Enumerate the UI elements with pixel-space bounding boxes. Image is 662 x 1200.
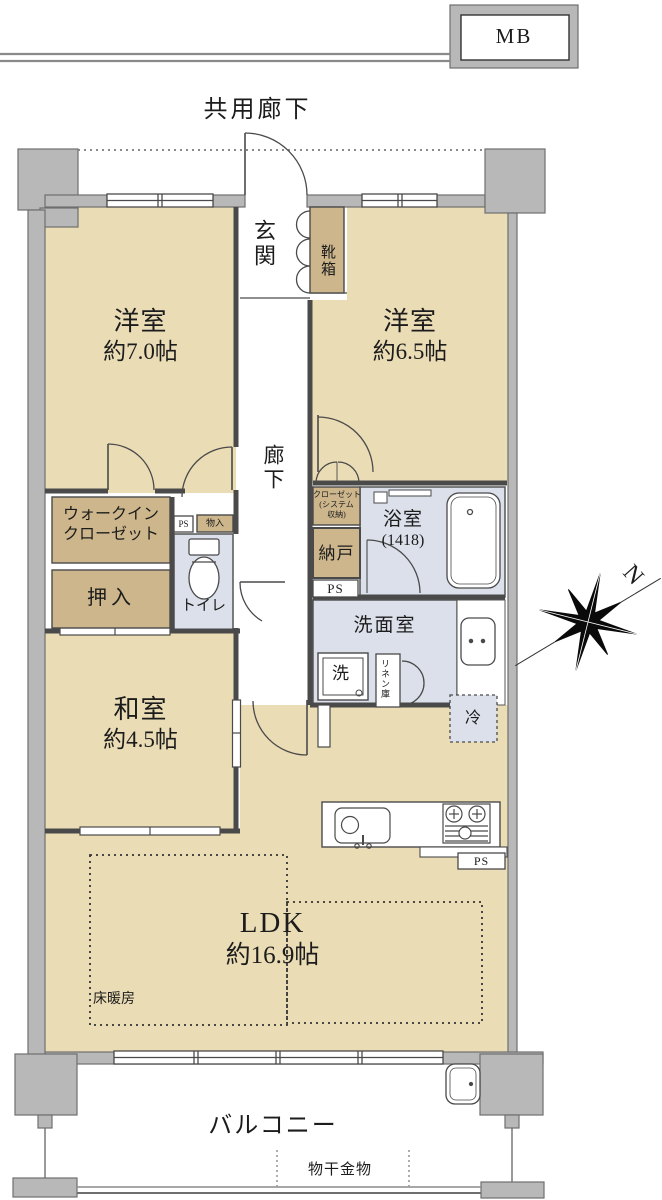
closet-line1: クローゼット bbox=[313, 490, 360, 500]
common-corridor-label: 共用廊下 bbox=[160, 96, 355, 125]
walk-in-closet-label: ウォークイン クローゼット bbox=[52, 505, 170, 544]
ps-label-2: PS bbox=[313, 581, 358, 597]
closet-line2: (システム bbox=[313, 500, 360, 510]
north-label: N bbox=[618, 560, 649, 590]
west-room1-size: 約7.0帖 bbox=[45, 338, 236, 366]
wall-stub bbox=[318, 705, 330, 747]
laundry-hardware-label: 物干金物 bbox=[308, 1161, 372, 1179]
washbasin bbox=[461, 618, 495, 665]
ps-label-3: PS bbox=[458, 854, 505, 869]
wic-line1: ウォークイン bbox=[52, 505, 170, 525]
bath-label: 浴室 (1418) bbox=[363, 508, 443, 551]
balcony-label: バルコニー bbox=[188, 1112, 358, 1141]
west-room2-size: 約6.5帖 bbox=[313, 338, 507, 366]
ps-label-1: PS bbox=[174, 519, 193, 530]
kitchen-stove bbox=[443, 804, 490, 843]
west-room1-name: 洋室 bbox=[45, 306, 236, 338]
ldk-size: 約16.9帖 bbox=[160, 941, 385, 972]
floor-heating-label: 床暖房 bbox=[93, 991, 135, 1008]
north-compass: N bbox=[515, 549, 660, 694]
entrance-step-lines bbox=[240, 293, 347, 298]
bath-name: 浴室 bbox=[363, 508, 443, 531]
ldk-label: LDK 約16.9帖 bbox=[160, 906, 385, 972]
washer-label: 洗 bbox=[318, 664, 364, 685]
linen-label: リネン庫 bbox=[380, 659, 389, 699]
toilet-fixture bbox=[189, 539, 219, 599]
toilet-label: トイレ bbox=[174, 597, 233, 615]
japanese-room-size: 約4.5帖 bbox=[45, 726, 236, 754]
floor-plan: N MB 共用廊下 玄関 靴箱 洋室 約7.0帖 洋室 約6.5帖 廊下 ウォー… bbox=[0, 0, 662, 1200]
shoe-box-label: 靴箱 bbox=[319, 244, 334, 278]
wic-line2: クローゼット bbox=[52, 525, 170, 545]
nando-label: 納戸 bbox=[313, 544, 360, 565]
system-closet-label: クローゼット (システム 収納) bbox=[313, 490, 360, 520]
fridge-label: 冷 bbox=[450, 709, 497, 729]
washroom-label: 洗面室 bbox=[313, 614, 457, 637]
mb-label: MB bbox=[450, 5, 578, 68]
japanese-room-name: 和室 bbox=[45, 694, 236, 726]
ldk-name: LDK bbox=[160, 906, 385, 941]
bath-size: (1418) bbox=[363, 531, 443, 551]
kitchen-sink bbox=[335, 808, 390, 848]
site-boundary-lines bbox=[0, 54, 450, 61]
monoire-label: 物入 bbox=[197, 518, 233, 529]
japanese-room-label: 和室 約4.5帖 bbox=[45, 694, 236, 754]
closet-line3: 収納) bbox=[313, 510, 360, 520]
west-room1-label: 洋室 約7.0帖 bbox=[45, 306, 236, 366]
west-room2-name: 洋室 bbox=[313, 306, 507, 338]
west-room2-label: 洋室 約6.5帖 bbox=[313, 306, 507, 366]
slop-sink bbox=[446, 1064, 480, 1104]
corridor-label: 廊下 bbox=[262, 444, 283, 492]
oshiire-label: 押入 bbox=[52, 586, 170, 610]
entrance-label: 玄関 bbox=[252, 219, 274, 269]
